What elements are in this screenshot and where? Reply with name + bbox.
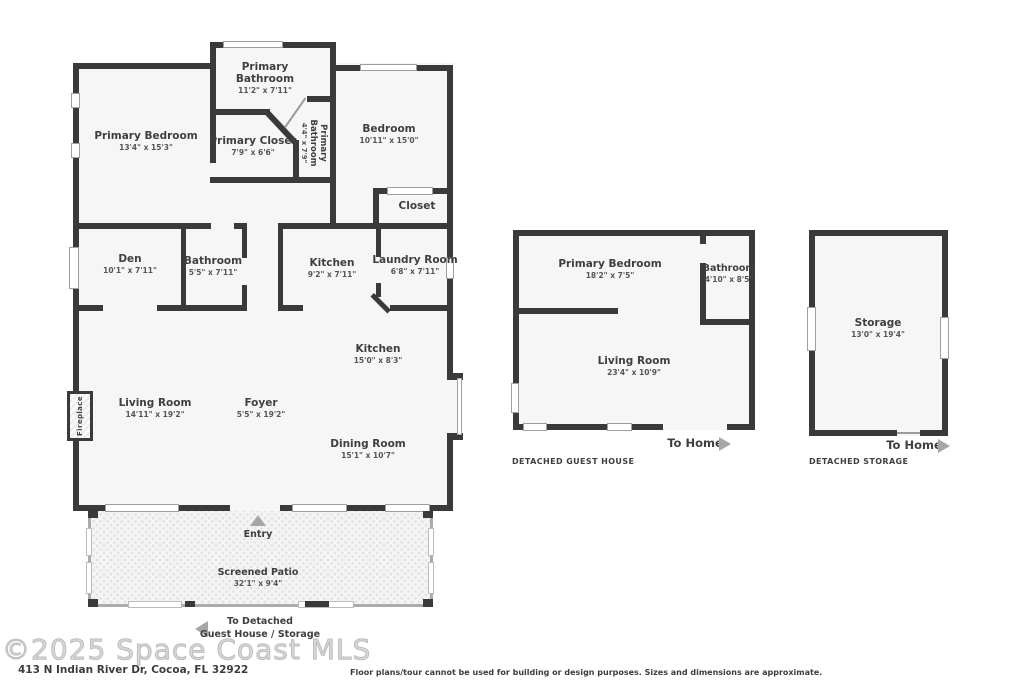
room-dims: 4'10" x 8'5": [703, 276, 756, 284]
disclaimer-text: Floor plans/tour cannot be used for buil…: [350, 668, 822, 677]
wall-segment: [210, 177, 336, 183]
entry-label: Entry: [244, 529, 273, 541]
wall-segment: [278, 305, 303, 311]
room-label-primary-bathroom: Primary Bathroom 11'2" x 7'11": [233, 62, 297, 95]
wall-segment: [809, 230, 948, 236]
window: [292, 504, 347, 512]
window: [387, 187, 433, 195]
wall-segment: [513, 230, 755, 236]
room-name: Bathroom: [703, 264, 756, 275]
storage-to-home-arrow-icon: [938, 439, 950, 453]
room-name: Foyer: [237, 398, 286, 410]
wall-segment: [447, 65, 453, 377]
floor-plan-page: Fireplace Primary Bedroom 13'4" x 15'3" …: [0, 0, 1024, 683]
room-label-foyer: Foyer 5'5" x 19'2": [237, 398, 286, 419]
room-name: Kitchen: [308, 258, 357, 270]
window: [511, 383, 519, 413]
wall-segment: [513, 308, 618, 314]
wall-segment: [73, 63, 213, 69]
window: [807, 307, 816, 351]
room-name: Bedroom: [360, 124, 419, 136]
room-label-kitchen-small: Kitchen 9'2" x 7'11": [308, 258, 357, 279]
room-label-guest-living-room: Living Room 23'4" x 10'9": [598, 356, 671, 377]
room-label-closet: Closet: [399, 201, 436, 213]
room-name: Den: [103, 254, 157, 266]
wall-segment: [213, 109, 270, 115]
room-name: Kitchen: [354, 344, 403, 356]
entry-arrow-icon: [250, 515, 266, 526]
wall-segment: [186, 305, 247, 311]
wall-segment: [920, 430, 948, 436]
patio-post: [88, 511, 98, 518]
wall-segment: [390, 305, 453, 311]
wall-segment: [278, 223, 453, 229]
room-label-primary-closet: Primary Closet 7'9" x 6'6": [209, 136, 296, 157]
room-dims: 13'0" x 19'4": [851, 331, 905, 339]
wall-segment: [73, 305, 103, 311]
room-label-primary-bedroom: Primary Bedroom 13'4" x 15'3": [94, 131, 197, 152]
patio-screen-window: [428, 528, 434, 556]
wall-segment: [307, 96, 330, 102]
patio-screen-window: [428, 562, 434, 594]
room-dims: 32'1" x 9'4": [218, 580, 299, 588]
room-label-dining-room: Dining Room 15'1" x 10'7": [330, 439, 406, 460]
room-dims: 23'4" x 10'9": [598, 369, 671, 377]
guest-to-home-label: To Home: [667, 436, 723, 450]
wall-segment: [157, 305, 186, 311]
wall-segment: [73, 223, 211, 229]
wall-segment: [376, 226, 381, 257]
room-dims: 4'4" x 7'9": [299, 115, 307, 171]
storage-to-home-label: To Home: [886, 438, 942, 452]
window: [523, 423, 547, 431]
room-dims: 5'5" x 19'2": [237, 411, 286, 419]
room-name: Dining Room: [330, 439, 406, 451]
patio-post: [423, 599, 433, 607]
wall-segment: [447, 436, 453, 511]
room-label-laundry-room: Laundry Room 6'8" x 7'11": [372, 255, 457, 276]
room-name: Screened Patio: [218, 568, 299, 579]
window: [607, 423, 632, 431]
room-name: Primary Bathroom: [308, 115, 327, 171]
wall-segment: [242, 226, 247, 258]
room-label-bedroom: Bedroom 10'11" x 15'0": [360, 124, 419, 145]
window: [940, 317, 949, 359]
room-name: Primary Bedroom: [558, 259, 661, 271]
patio-post: [88, 599, 98, 607]
room-label-living-room: Living Room 14'11" x 19'2": [119, 398, 192, 419]
patio-post: [305, 601, 329, 607]
room-name: Primary Closet: [209, 136, 296, 148]
property-address: 413 N Indian River Dr, Cocoa, FL 32922: [18, 664, 248, 676]
room-name: Bathroom: [184, 256, 242, 268]
window: [223, 41, 283, 48]
guest-to-home-arrow-icon: [719, 437, 731, 451]
room-label-storage: Storage 13'0" x 19'4": [851, 318, 905, 339]
room-label-guest-primary-bedroom: Primary Bedroom 18'2" x 7'5": [558, 259, 661, 280]
room-dims: 11'2" x 7'11": [233, 87, 297, 95]
to-detached-label-line1: To Detached: [227, 616, 293, 628]
wall-segment: [700, 236, 706, 244]
patio-screen-window: [86, 562, 92, 594]
room-dims: 6'8" x 7'11": [372, 268, 457, 276]
fireplace-label: Fireplace: [76, 396, 84, 436]
wall-segment: [278, 226, 283, 310]
room-dims: 15'1" x 10'7": [330, 452, 406, 460]
room-name: Laundry Room: [372, 255, 457, 267]
window: [360, 64, 417, 71]
bay-window-glass: [457, 378, 462, 435]
fireplace: Fireplace: [67, 391, 93, 441]
patio-post: [185, 601, 195, 607]
window: [71, 143, 80, 158]
room-dims: 10'11" x 15'0": [360, 137, 419, 145]
room-dims: 10'1" x 7'11": [103, 267, 157, 275]
room-label-kitchen-main: Kitchen 15'0" x 8'3": [354, 344, 403, 365]
room-dims: 13'4" x 15'3": [94, 144, 197, 152]
patio-post: [423, 511, 433, 518]
patio-screen-window: [128, 601, 182, 608]
room-label-screened-patio: Screened Patio 32'1" x 9'4": [218, 568, 299, 588]
guest-house-caption: DETACHED GUEST HOUSE: [512, 457, 634, 466]
room-name: Living Room: [119, 398, 192, 410]
room-name: Primary Bedroom: [94, 131, 197, 143]
room-name: Storage: [851, 318, 905, 330]
patio-screen-window: [86, 528, 92, 556]
room-label-guest-bathroom: Bathroom 4'10" x 8'5": [703, 264, 756, 284]
door-threshold: [897, 432, 920, 434]
room-dims: 9'2" x 7'11": [308, 271, 357, 279]
wall-segment: [700, 319, 755, 325]
room-dims: 14'11" x 19'2": [119, 411, 192, 419]
room-label-den: Den 10'1" x 7'11": [103, 254, 157, 275]
room-label-bathroom: Bathroom 5'5" x 7'11": [184, 256, 242, 277]
wall-segment: [749, 230, 755, 430]
room-dims: 7'9" x 6'6": [209, 149, 296, 157]
watermark: ©2025 Space Coast MLS: [2, 633, 371, 666]
room-dims: 18'2" x 7'5": [558, 272, 661, 280]
room-label-primary-bathroom-small: Primary Bathroom 4'4" x 7'9": [299, 115, 327, 171]
room-name: Primary Bathroom: [233, 62, 297, 86]
room-name: Living Room: [598, 356, 671, 368]
wall-segment: [809, 430, 897, 436]
storage-caption: DETACHED STORAGE: [809, 457, 908, 466]
wall-segment: [727, 424, 755, 430]
window: [69, 247, 79, 289]
room-dims: 5'5" x 7'11": [184, 269, 242, 277]
room-dims: 15'0" x 8'3": [354, 357, 403, 365]
room-name: Closet: [399, 201, 436, 213]
window: [71, 93, 80, 108]
window: [105, 504, 179, 512]
